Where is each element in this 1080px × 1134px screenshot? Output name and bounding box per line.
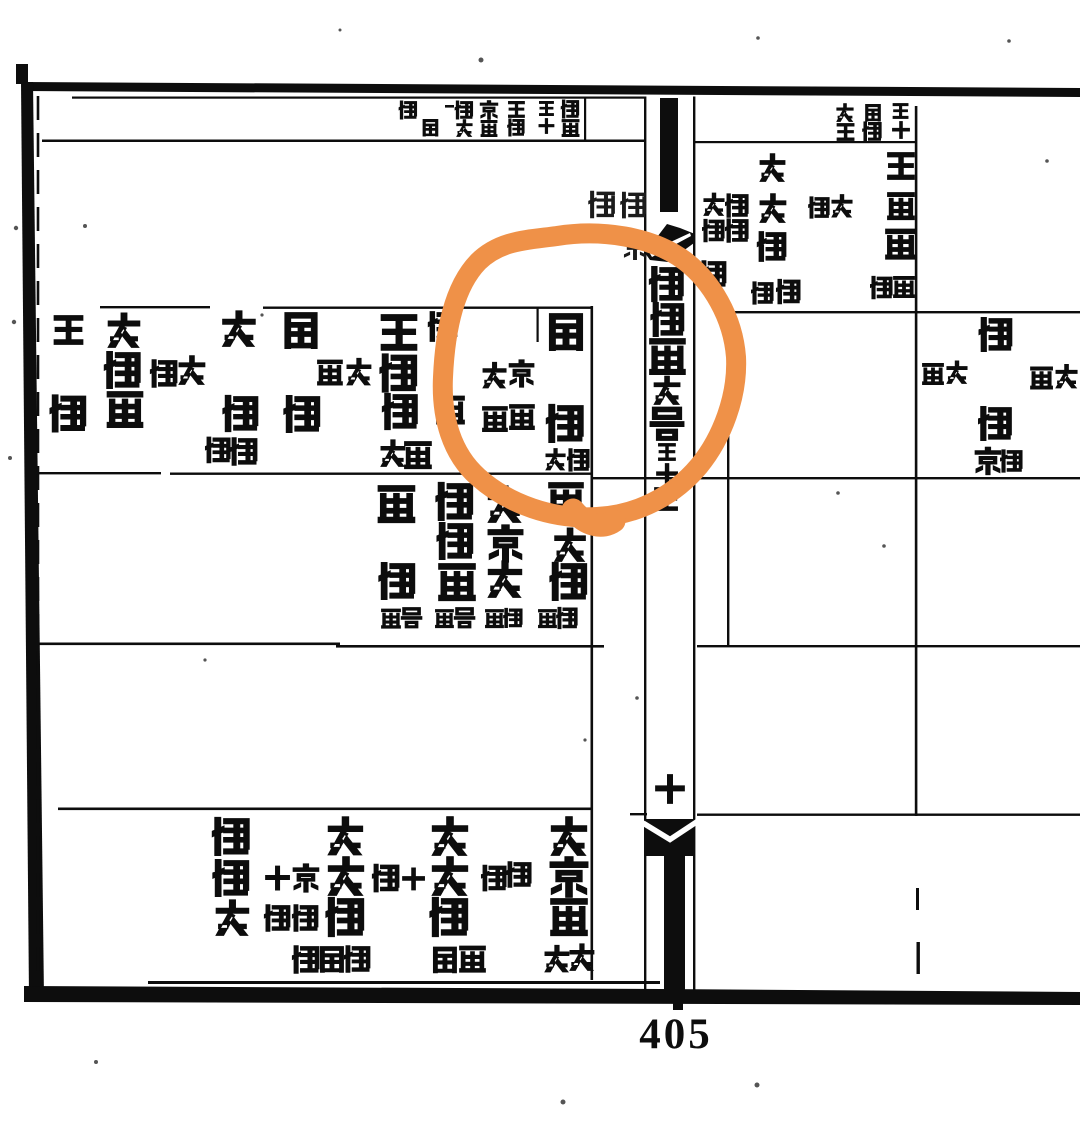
- svg-text:405: 405: [639, 1011, 713, 1058]
